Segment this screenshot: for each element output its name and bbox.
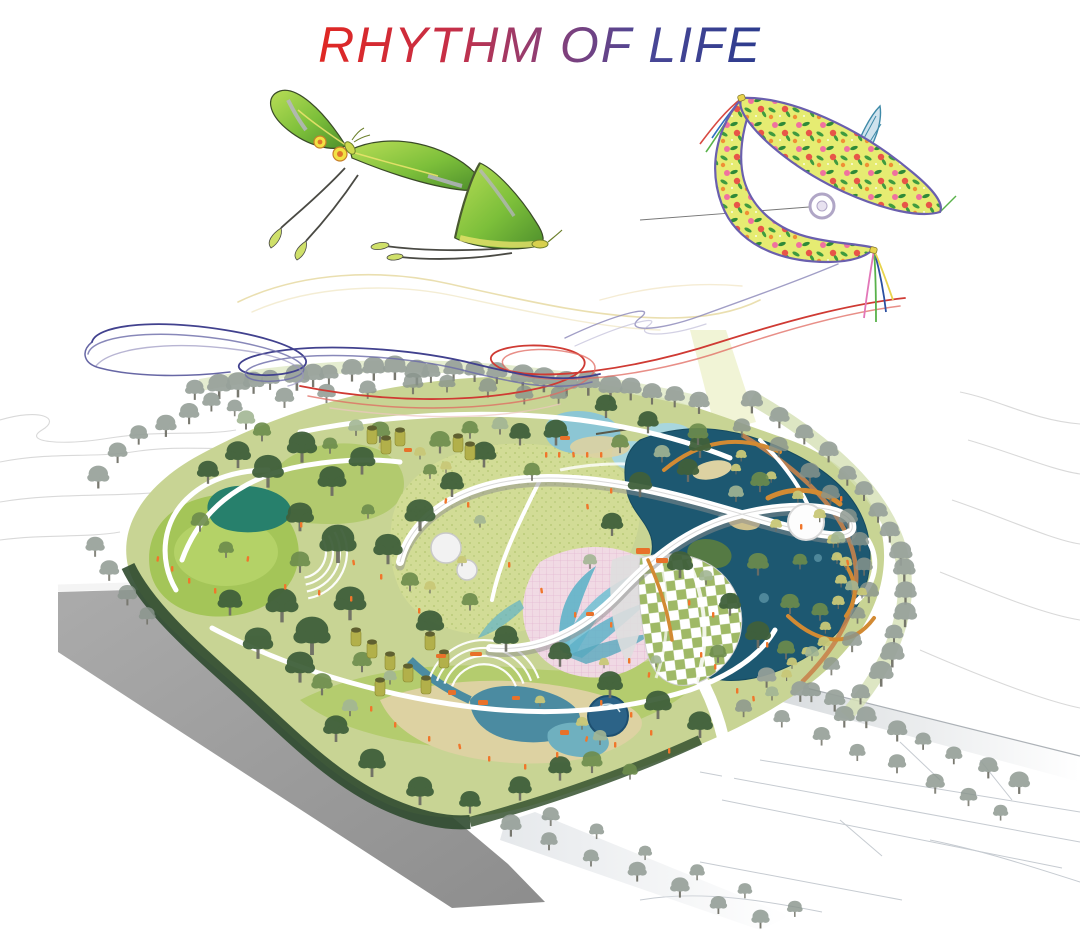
floral-swallow-kite (640, 94, 956, 322)
page-title: RHYTHM OF LIFE (0, 16, 1080, 74)
luna-moth-flying-1 (269, 90, 479, 260)
site-illustration (0, 0, 1080, 930)
round-platform-1 (431, 533, 461, 563)
round-platform-2 (457, 560, 477, 580)
poster: RHYTHM OF LIFE (0, 0, 1080, 930)
